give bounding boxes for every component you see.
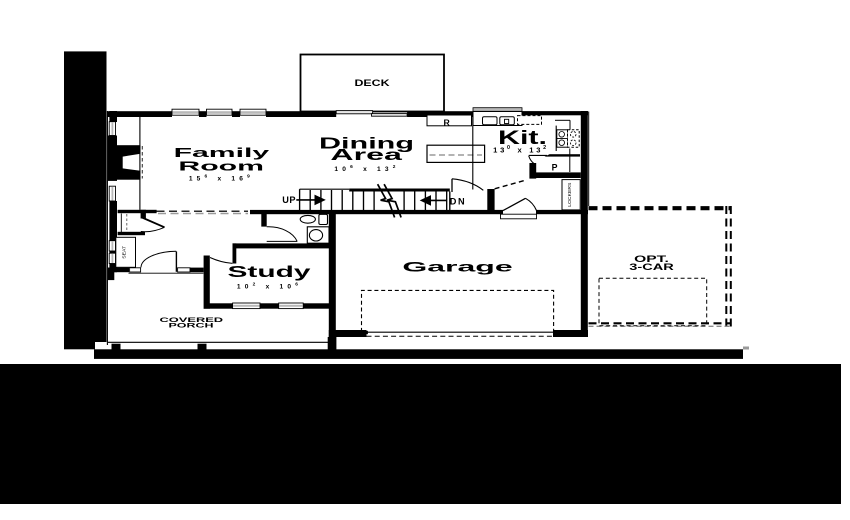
svg-text:156 x 169: 156 x 169 [189, 174, 254, 183]
svg-text:R: R [443, 117, 450, 127]
svg-text:130 x 132: 130 x 132 [493, 145, 549, 155]
svg-text:3-CAR: 3-CAR [629, 262, 674, 272]
svg-text:DECK: DECK [355, 78, 391, 88]
svg-text:Study: Study [228, 264, 312, 281]
svg-text:LOCKERS: LOCKERS [567, 183, 572, 207]
svg-text:Family: Family [174, 146, 270, 160]
svg-text:PORCH: PORCH [169, 322, 215, 329]
svg-text:Garage: Garage [402, 259, 513, 274]
svg-text:DN: DN [450, 197, 466, 207]
svg-text:Room: Room [178, 159, 264, 173]
svg-text:102 x 106: 102 x 106 [237, 281, 302, 290]
svg-text:106 x 132: 106 x 132 [334, 164, 399, 173]
svg-text:SEAT: SEAT [122, 246, 127, 259]
svg-text:P: P [552, 163, 558, 173]
svg-text:UP: UP [282, 195, 296, 205]
svg-text:Area: Area [330, 147, 402, 164]
